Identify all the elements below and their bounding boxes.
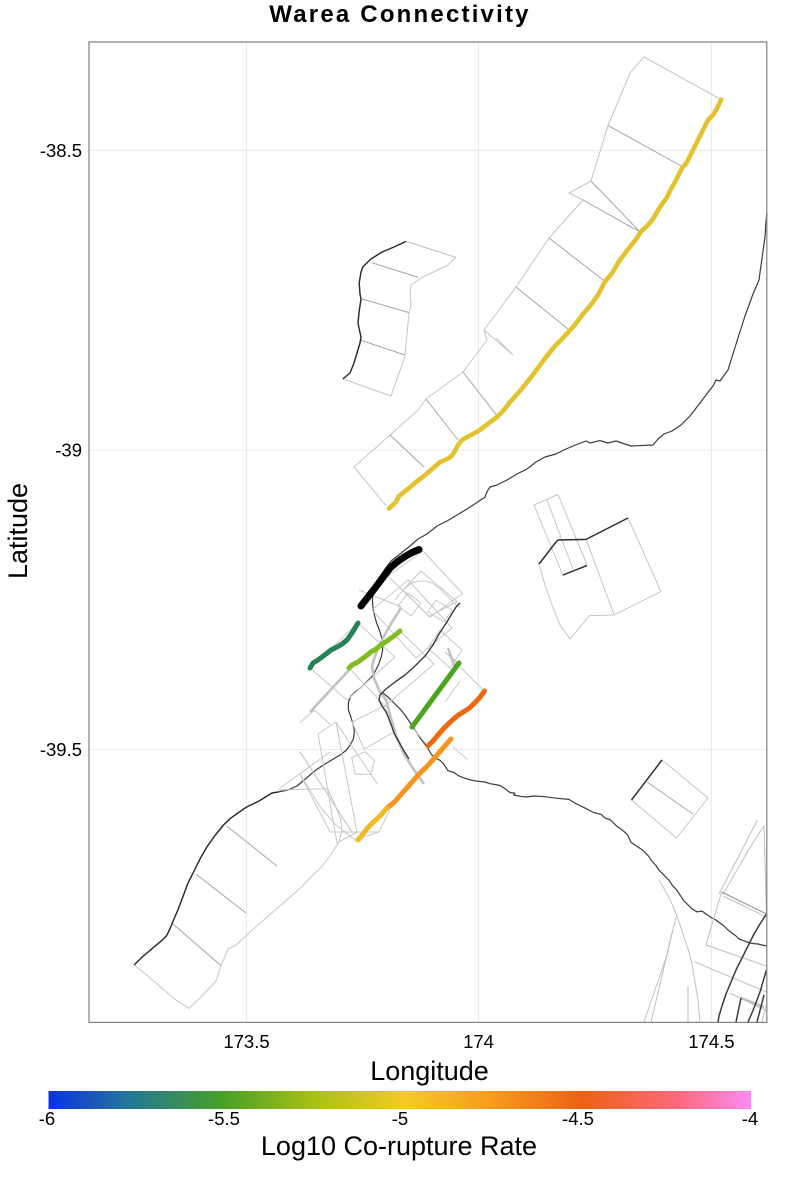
svg-text:Latitude: Latitude — [3, 483, 33, 579]
svg-text:-38.5: -38.5 — [40, 140, 82, 161]
svg-text:-4.5: -4.5 — [562, 1108, 594, 1129]
svg-text:-39.5: -39.5 — [40, 739, 82, 760]
svg-text:-39: -39 — [55, 440, 82, 461]
svg-text:174: 174 — [463, 1031, 494, 1052]
svg-text:Longitude: Longitude — [370, 1056, 489, 1086]
svg-text:Log10 Co-rupture Rate: Log10 Co-rupture Rate — [261, 1131, 537, 1161]
svg-text:-6: -6 — [39, 1108, 55, 1129]
svg-text:174.5: 174.5 — [688, 1031, 734, 1052]
svg-text:-5.5: -5.5 — [208, 1108, 240, 1129]
svg-text:173.5: 173.5 — [223, 1031, 269, 1052]
svg-text:-5: -5 — [392, 1108, 408, 1129]
svg-text:-4: -4 — [742, 1108, 758, 1129]
svg-text:Warea Connectivity: Warea Connectivity — [269, 1, 530, 28]
